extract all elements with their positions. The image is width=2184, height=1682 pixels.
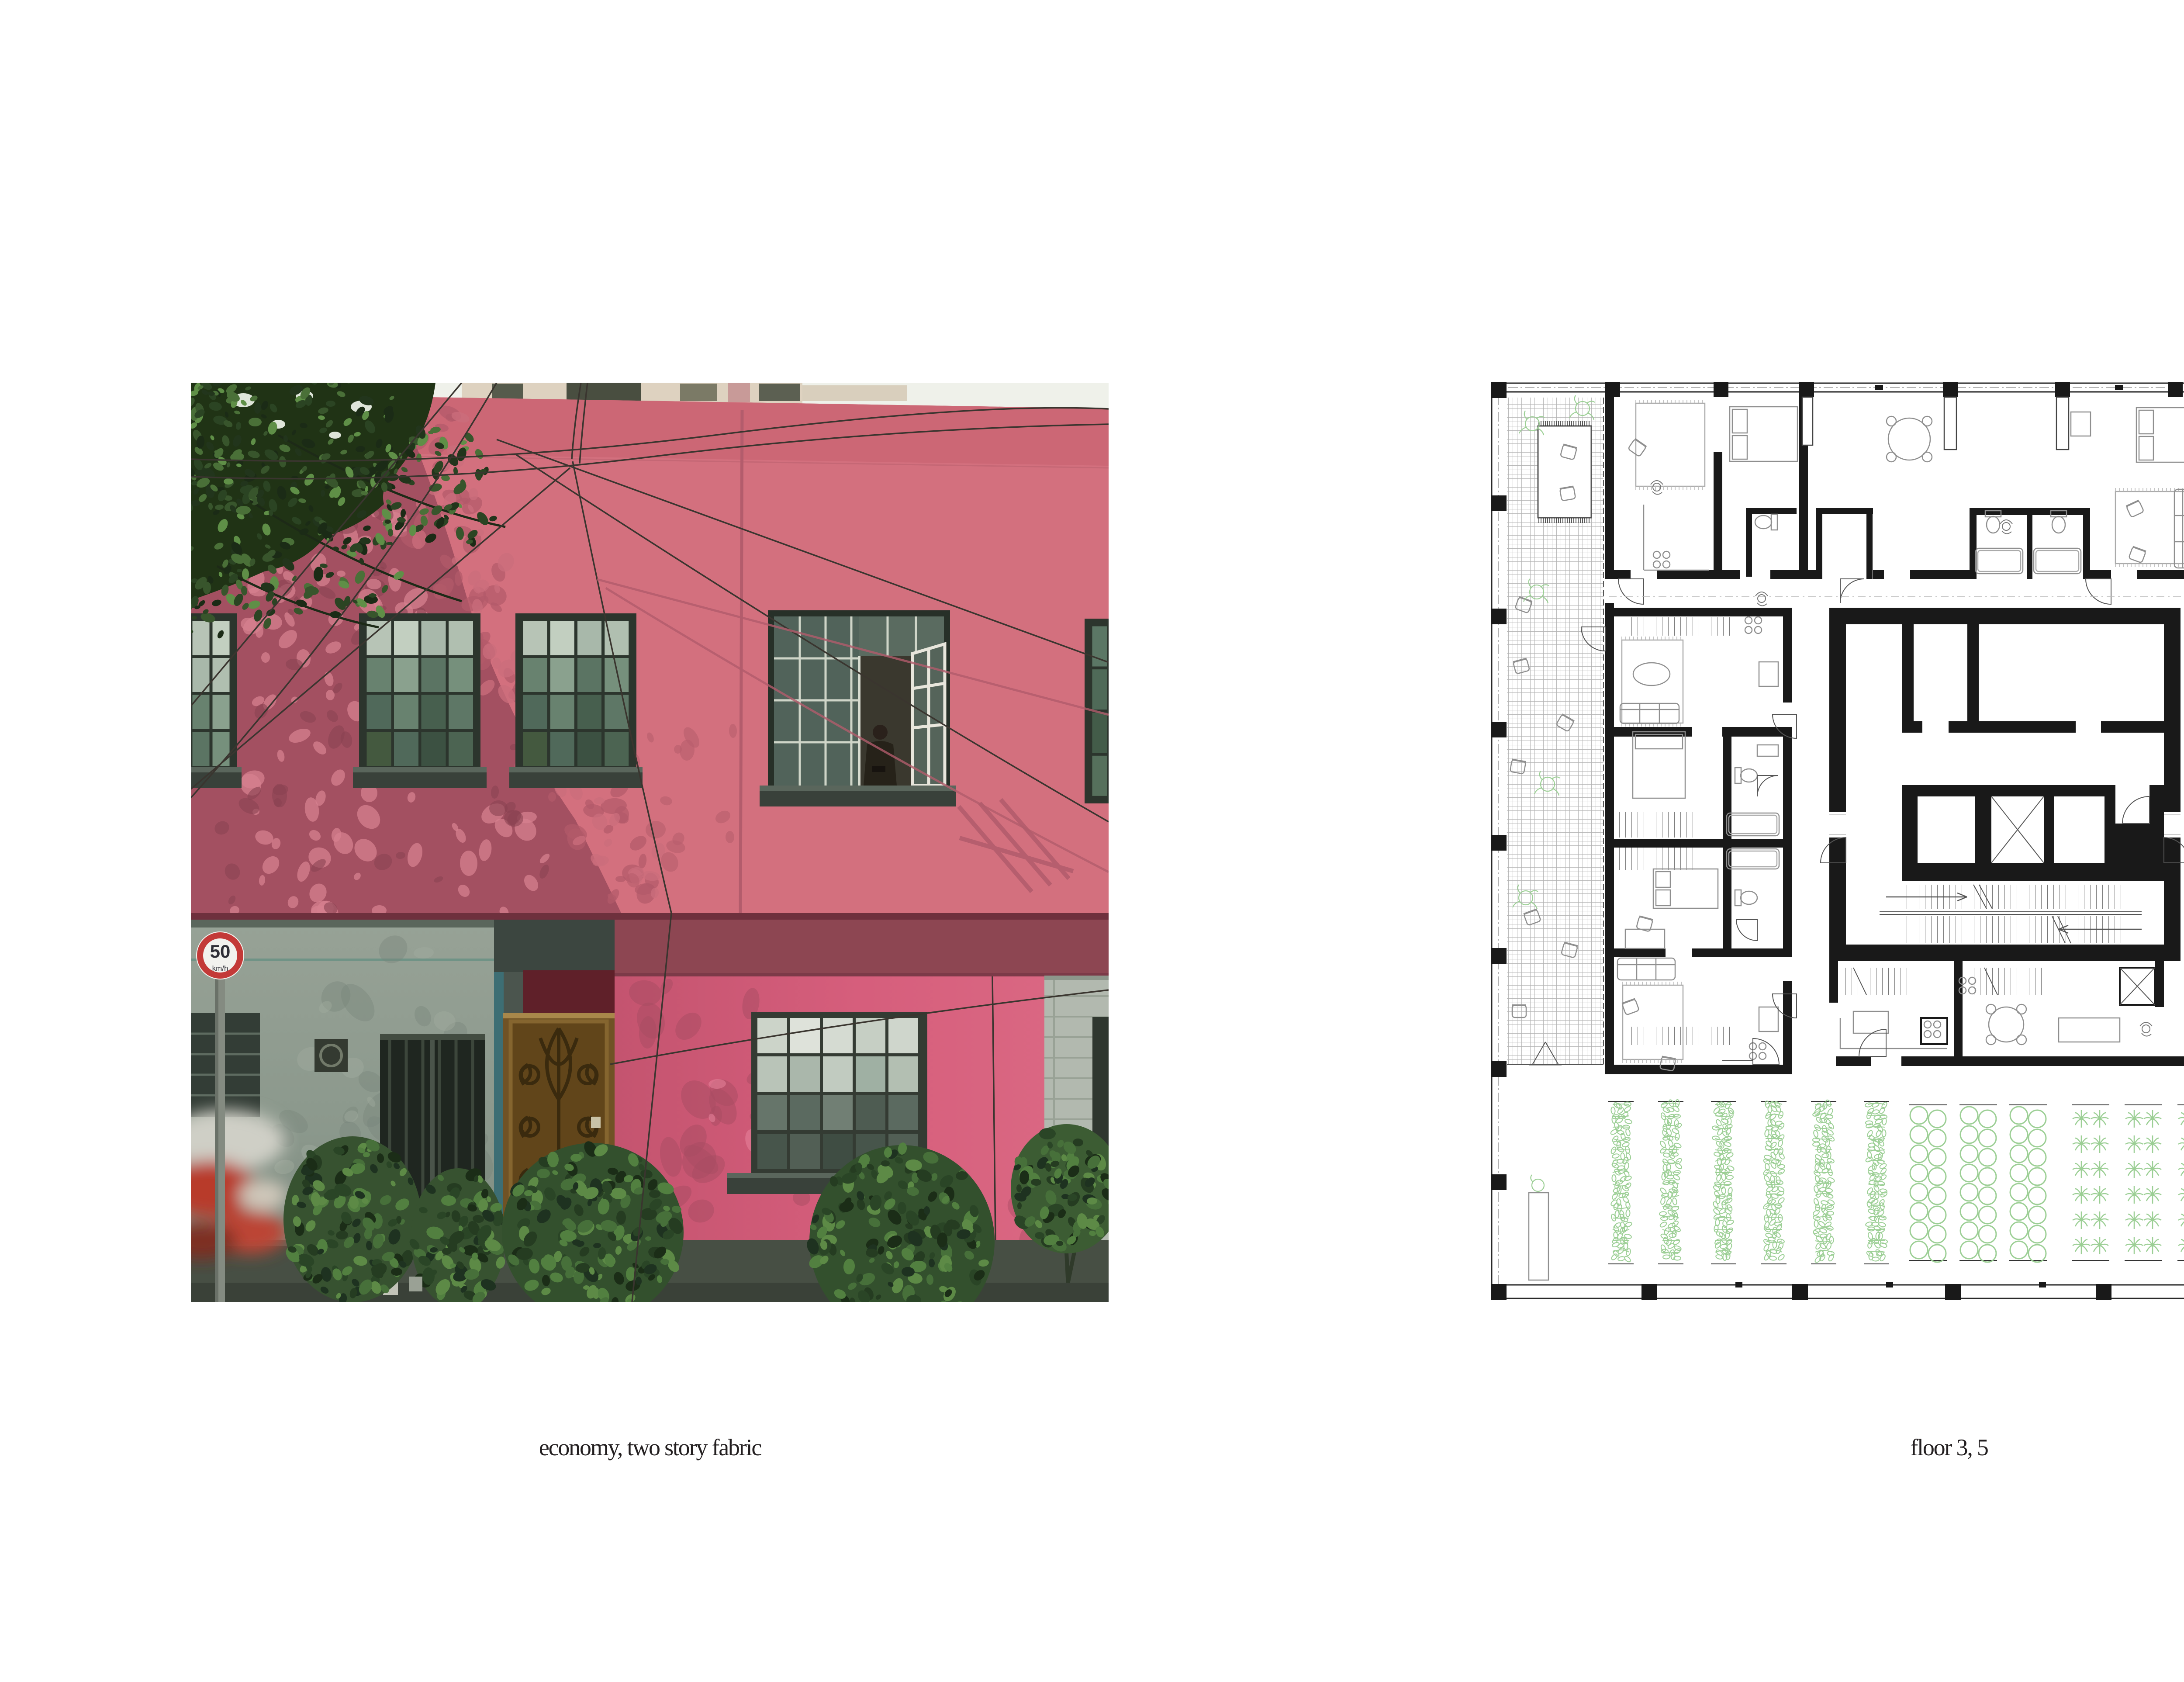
svg-text:km/h: km/h [212,964,228,973]
svg-text:50: 50 [210,941,231,962]
